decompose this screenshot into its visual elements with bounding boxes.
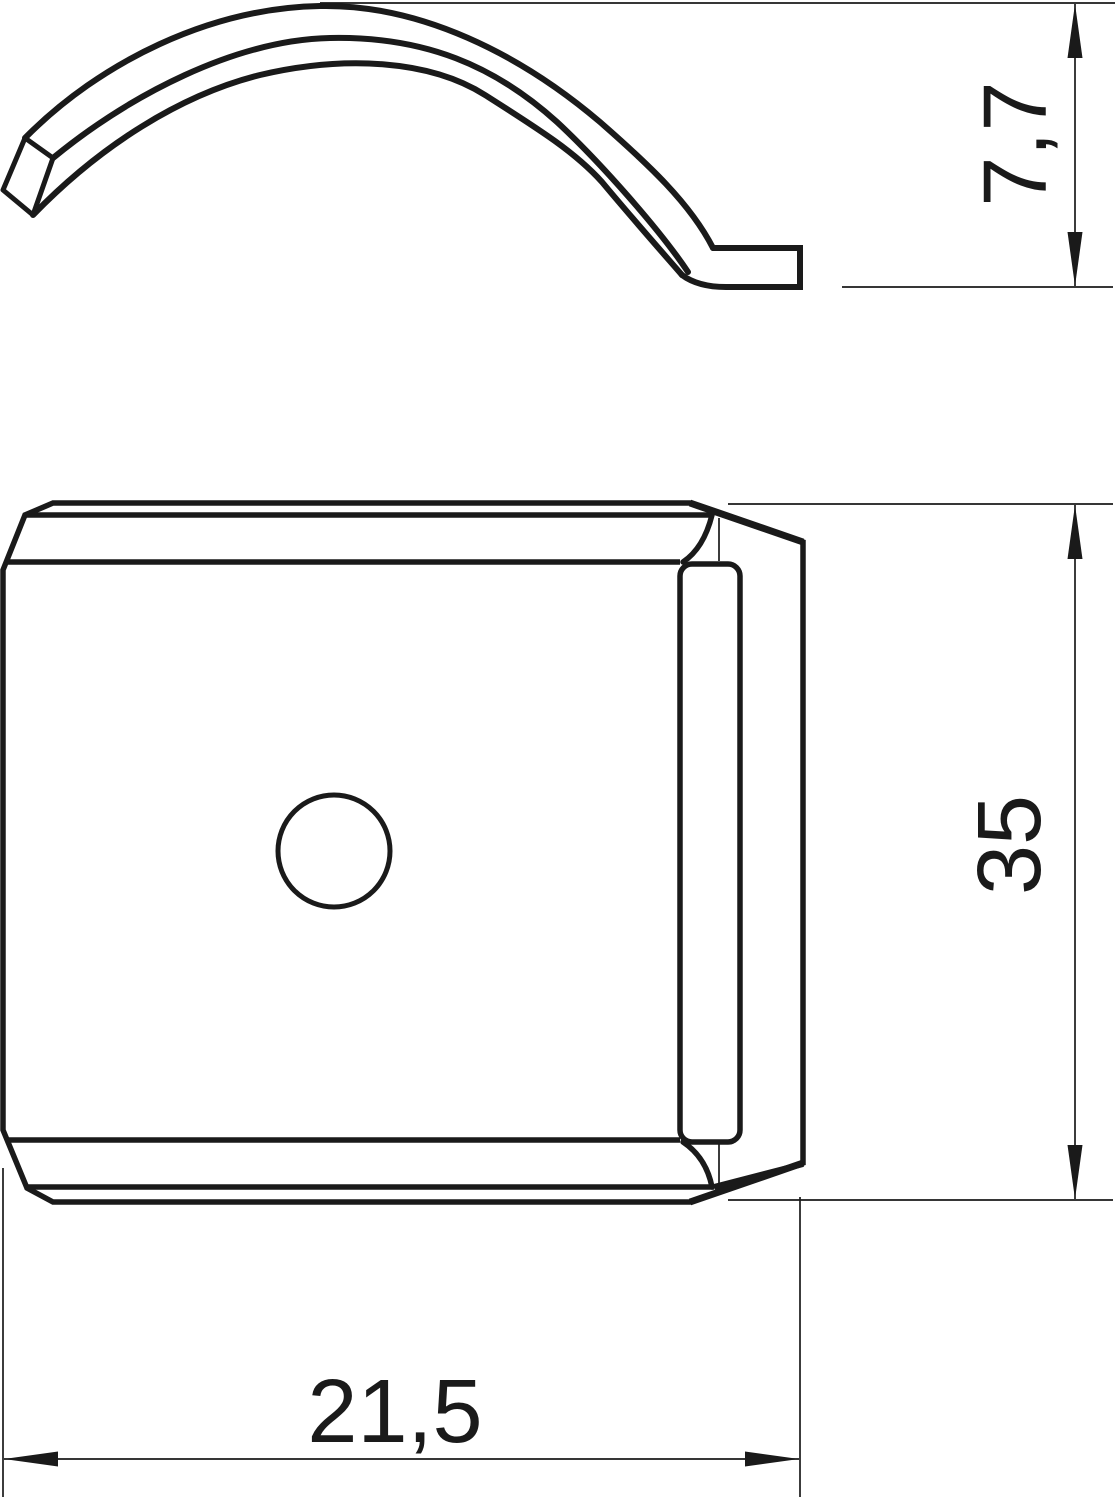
drawing-canvas: 7,7 35 21,5 [0, 0, 1116, 1500]
dim-label-plate-height: 35 [960, 795, 1060, 895]
side-profile-view [3, 6, 800, 287]
plate-bottom-face-edge [714, 1164, 803, 1187]
technical-drawing-sheet: 7,7 35 21,5 [0, 0, 1116, 1500]
arrowhead-down [1068, 232, 1083, 286]
center-hole [278, 795, 390, 907]
arrowhead-up [1068, 505, 1083, 559]
arrowhead-left [4, 1452, 58, 1467]
side-flange-outline [680, 564, 740, 1142]
dimension-plate-height: 35 [728, 504, 1113, 1200]
dim-label-clip-height: 7,7 [966, 81, 1066, 206]
plate-bottom-bend-curve [683, 1142, 712, 1187]
strip-foot [682, 248, 800, 287]
plate-silhouette [3, 503, 803, 1202]
dim-label-plate-width: 21,5 [307, 1362, 482, 1462]
dimension-plate-width: 21,5 [3, 1168, 800, 1497]
arrowhead-right [745, 1452, 799, 1467]
arrowhead-down [1068, 1145, 1083, 1199]
arrowhead-up [1068, 4, 1083, 58]
plate-top-bend-curve [683, 515, 712, 562]
dimension-clip-height: 7,7 [320, 3, 1115, 287]
strip-inner-arc [33, 63, 682, 275]
front-view [3, 503, 803, 1202]
strip-middle-arc [53, 38, 688, 272]
strip-outer-arc [25, 6, 713, 248]
